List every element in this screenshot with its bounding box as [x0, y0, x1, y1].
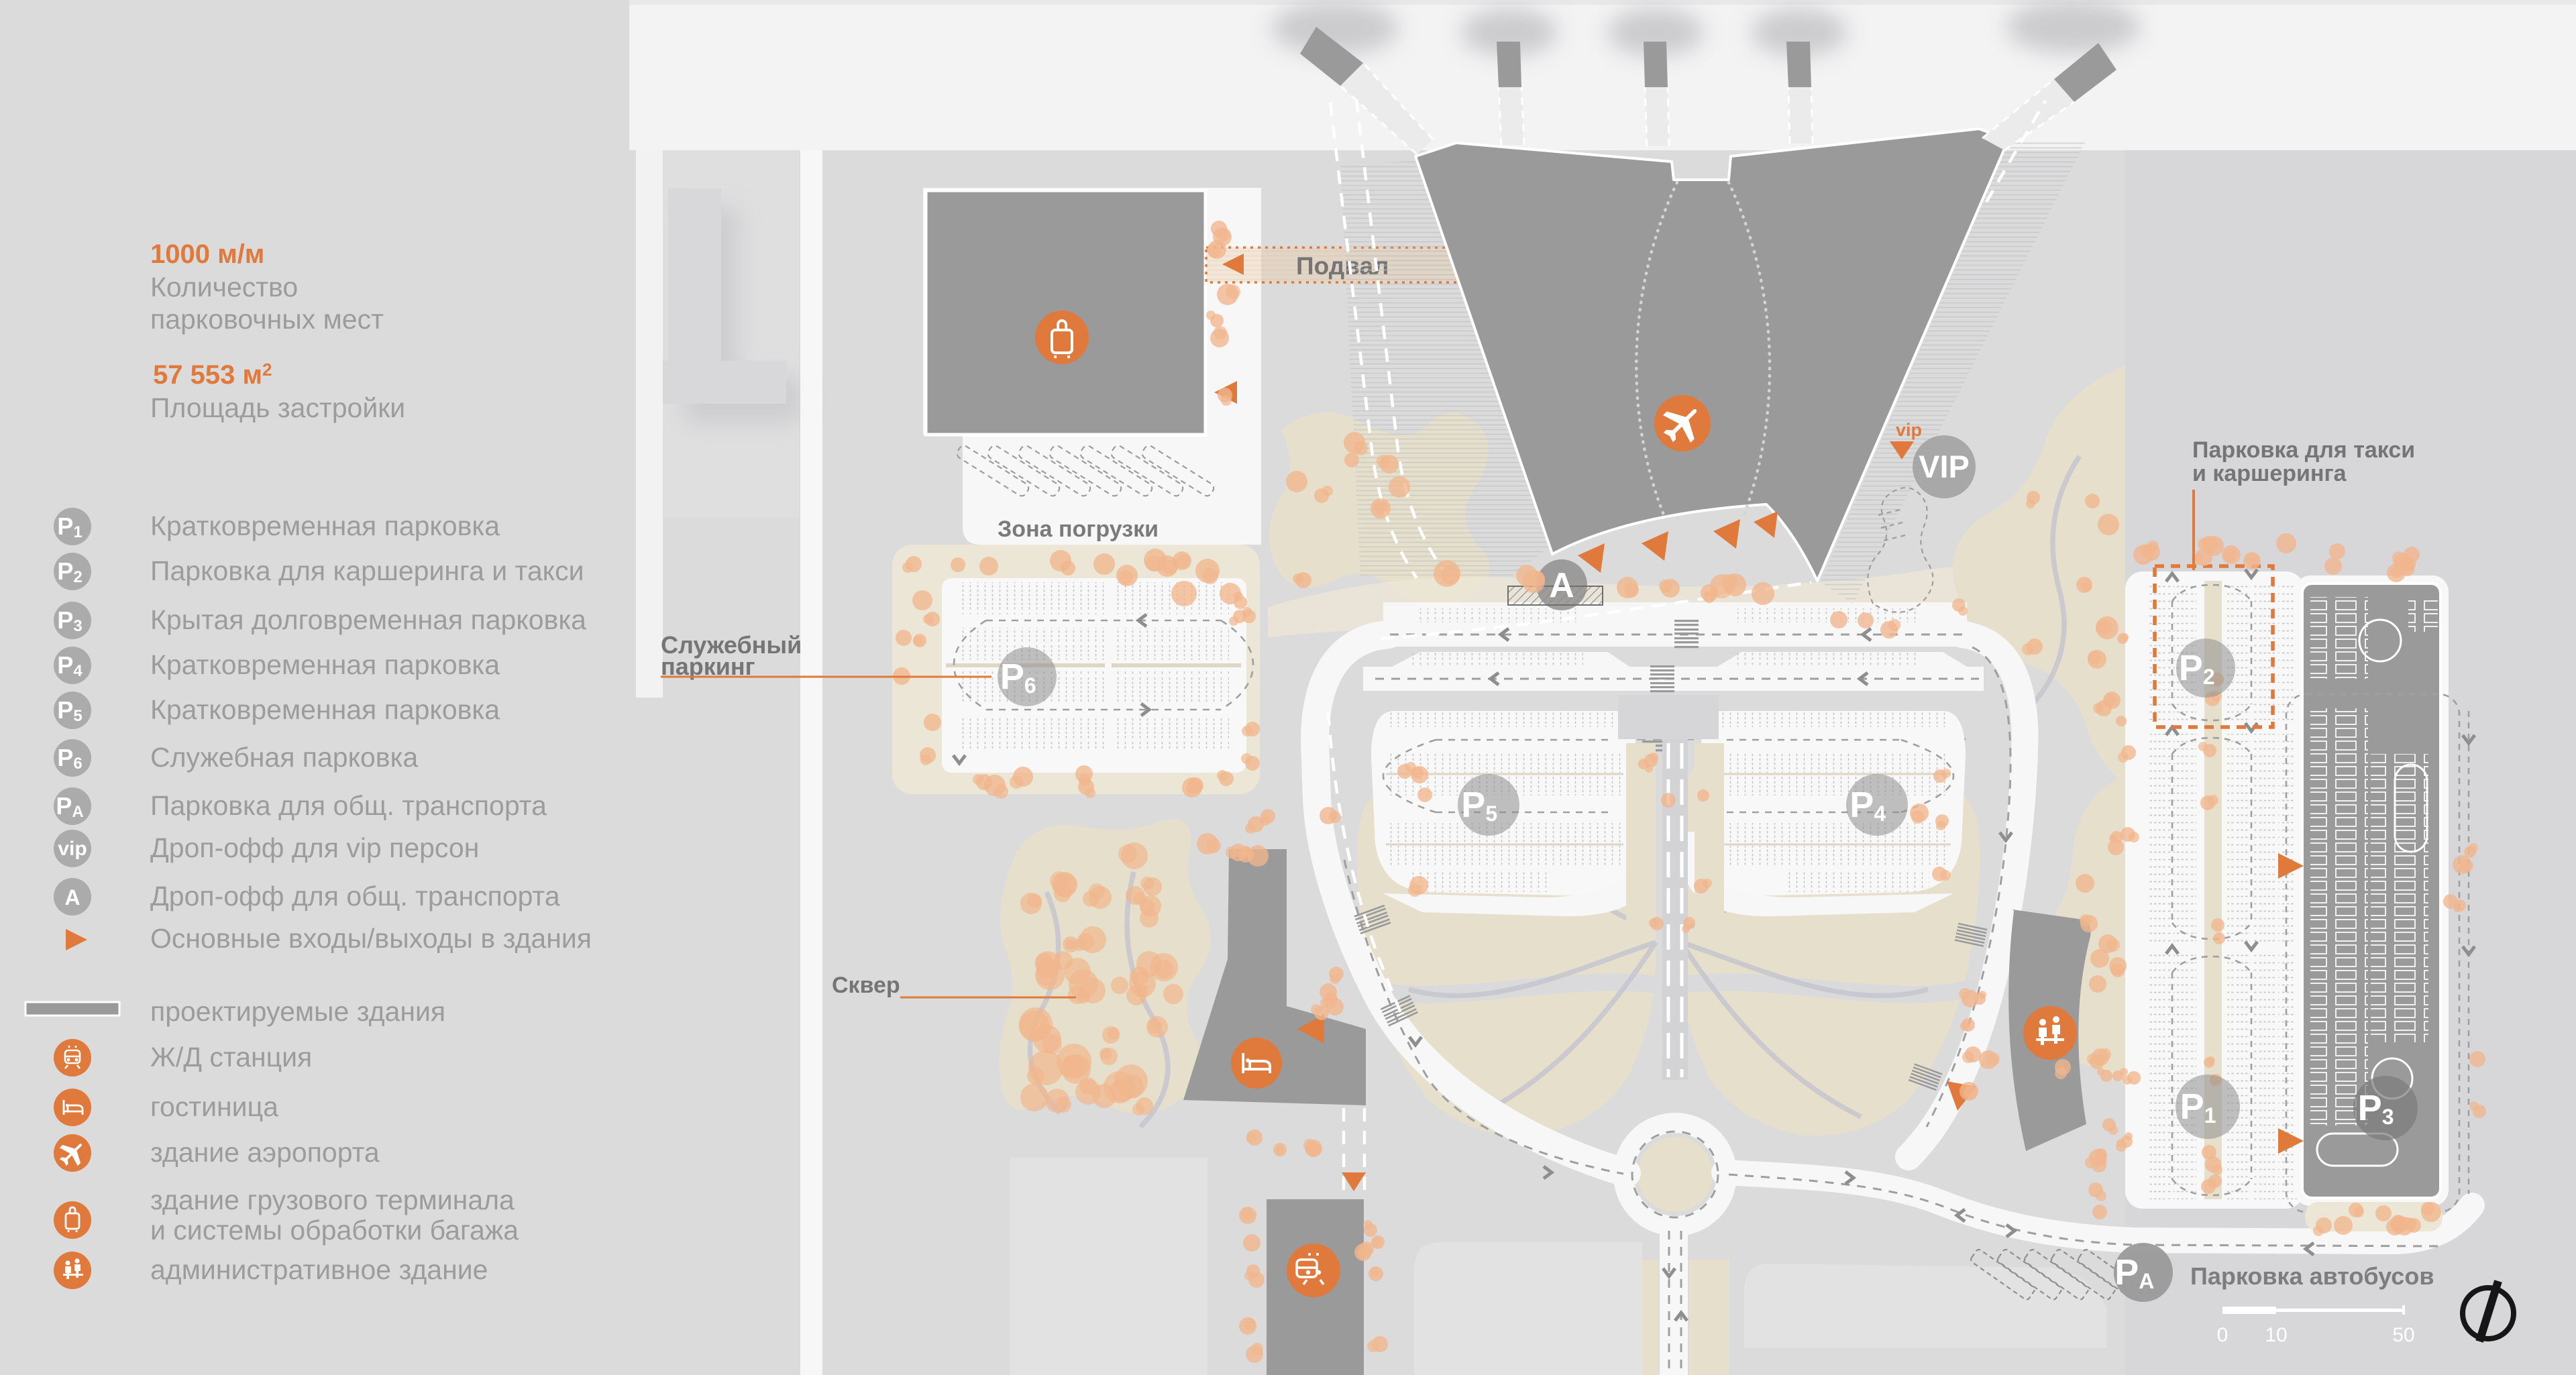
svg-text:Сквер: Сквер: [832, 973, 900, 998]
svg-text:Кратковременная парковка: Кратковременная парковка: [150, 510, 500, 541]
svg-text:VIP: VIP: [1919, 449, 1970, 484]
svg-text:A: A: [64, 885, 80, 910]
svg-text:здание аэропорта: здание аэропорта: [150, 1137, 380, 1168]
svg-text:Дроп-офф для vip персон: Дроп-офф для vip персон: [150, 832, 479, 863]
svg-text:0: 0: [2217, 1324, 2229, 1346]
svg-text:Ж/Д станция: Ж/Д станция: [150, 1042, 312, 1072]
svg-text:гостиница: гостиница: [150, 1091, 278, 1122]
svg-text:1000 м/м: 1000 м/м: [150, 239, 264, 269]
svg-text:Кратковременная парковка: Кратковременная парковка: [150, 694, 500, 725]
svg-text:Основные входы/выходы в здания: Основные входы/выходы в здания: [150, 923, 592, 954]
svg-text:10: 10: [2265, 1324, 2287, 1346]
svg-text:административное здание: административное здание: [150, 1254, 488, 1285]
svg-text:Парковка для каршеринга и такс: Парковка для каршеринга и такси: [150, 555, 584, 586]
svg-text:Количество: Количество: [150, 272, 298, 302]
svg-text:Зона погрузки: Зона погрузки: [998, 516, 1159, 542]
svg-text:Площадь застройки: Площадь застройки: [150, 392, 405, 423]
svg-text:Парковка автобусов: Парковка автобусов: [2190, 1262, 2434, 1290]
svg-text:Крытая долговременная парковка: Крытая долговременная парковка: [150, 604, 586, 635]
svg-text:и каршеринга: и каршеринга: [2192, 461, 2347, 486]
svg-text:vip: vip: [58, 838, 87, 860]
svg-text:Служебная парковка: Служебная парковка: [150, 742, 418, 773]
svg-text:Дроп-офф для общ. транспорта: Дроп-офф для общ. транспорта: [150, 881, 560, 912]
svg-text:Парковка для такси: Парковка для такси: [2192, 437, 2415, 463]
svg-text:парковочных мест: парковочных мест: [150, 304, 384, 335]
svg-text:57 553 м2: 57 553 м2: [153, 360, 272, 390]
svg-text:vip: vip: [1896, 420, 1922, 440]
svg-text:50: 50: [2392, 1324, 2414, 1346]
svg-text:здание грузового терминала: здание грузового терминала: [150, 1185, 515, 1215]
svg-text:Кратковременная парковка: Кратковременная парковка: [150, 649, 500, 680]
svg-text:проектируемые здания: проектируемые здания: [150, 996, 445, 1027]
svg-text:и системы обработки багажа: и системы обработки багажа: [150, 1215, 519, 1246]
svg-text:A: A: [1549, 566, 1574, 605]
svg-text:Парковка для общ. транспорта: Парковка для общ. транспорта: [150, 790, 547, 821]
